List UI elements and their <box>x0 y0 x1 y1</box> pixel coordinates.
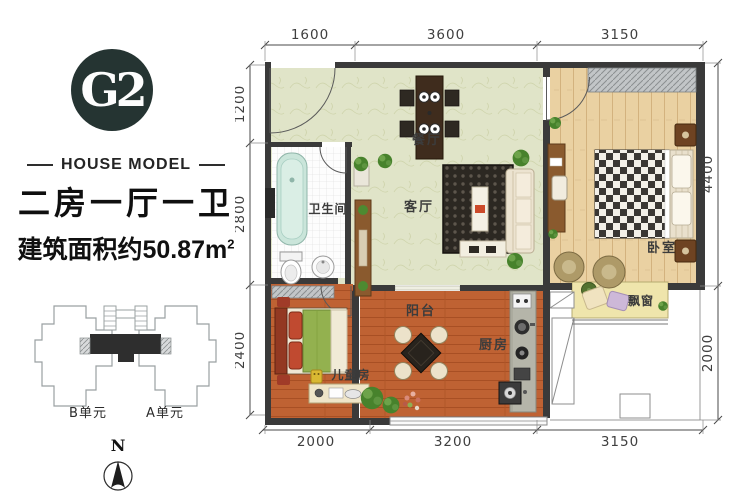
dim-right-2: 2000 <box>700 334 716 372</box>
house-model-label: HOUSE MODEL <box>61 156 191 174</box>
house-model-row: HOUSE MODEL <box>26 156 226 174</box>
hall-console <box>354 157 371 296</box>
dim-bottom-1: 2000 <box>297 434 335 450</box>
building-key-plan: B单元 A单元 <box>28 284 223 424</box>
unit-a-label: A单元 <box>146 406 184 421</box>
balcony-threshold <box>395 286 460 290</box>
building-area-text: 建筑面积约50.87m <box>17 236 227 264</box>
unit-logo-badge: G2 <box>71 49 153 131</box>
building-area-sup: 2 <box>227 237 234 252</box>
dash-right <box>199 164 225 166</box>
sofa <box>506 169 534 253</box>
double-bed <box>595 150 693 238</box>
kitchen-appliance <box>499 382 521 404</box>
unit-b-label: B单元 <box>69 406 107 421</box>
dim-right-1: 4400 <box>700 155 716 193</box>
living-set <box>443 165 534 257</box>
tv-bench <box>460 241 506 257</box>
dim-bottom-2: 3200 <box>434 434 472 450</box>
room-label-living: 客厅 <box>404 199 434 215</box>
north-arrow-icon: N <box>96 436 140 500</box>
north-label: N <box>111 436 126 455</box>
room-label-bedroom: 卧室 <box>647 240 677 256</box>
bedroom-wardrobe <box>588 68 696 92</box>
dim-left-1: 1200 <box>235 85 248 123</box>
room-label-bay: 飘窗 <box>628 293 654 308</box>
room-label-dining: 餐厅 <box>411 132 442 148</box>
kids-room-wardrobe <box>272 286 334 298</box>
floor-plan: 餐厅 卫生间 客厅 卧室 飘窗 阳台 厨房 儿童房 1600 3600 3150… <box>235 20 730 485</box>
dash-left <box>27 164 53 166</box>
key-plan-hatch-left <box>80 338 90 354</box>
sink <box>312 256 334 278</box>
toilet <box>280 252 302 284</box>
dim-bottom-3: 3150 <box>601 434 639 450</box>
room-label-kitchen: 厨房 <box>479 337 509 353</box>
layout-title: 二房一厅一卫 <box>0 178 252 224</box>
key-plan-hatch-right <box>161 338 171 354</box>
dim-top-1: 1600 <box>291 27 329 43</box>
bedroom-desk <box>548 144 567 232</box>
room-label-balcony: 阳台 <box>406 303 436 319</box>
dim-top-3: 3150 <box>601 27 639 43</box>
dim-left-2: 2800 <box>235 195 248 233</box>
unit-logo-text: G2 <box>80 67 143 113</box>
room-label-bathroom: 卫生间 <box>308 201 347 216</box>
dim-left-3: 2400 <box>235 331 248 369</box>
dim-top-2: 3600 <box>427 27 465 43</box>
room-label-kids: 儿童房 <box>330 367 370 382</box>
building-area: 建筑面积约50.87m2 <box>0 230 252 266</box>
